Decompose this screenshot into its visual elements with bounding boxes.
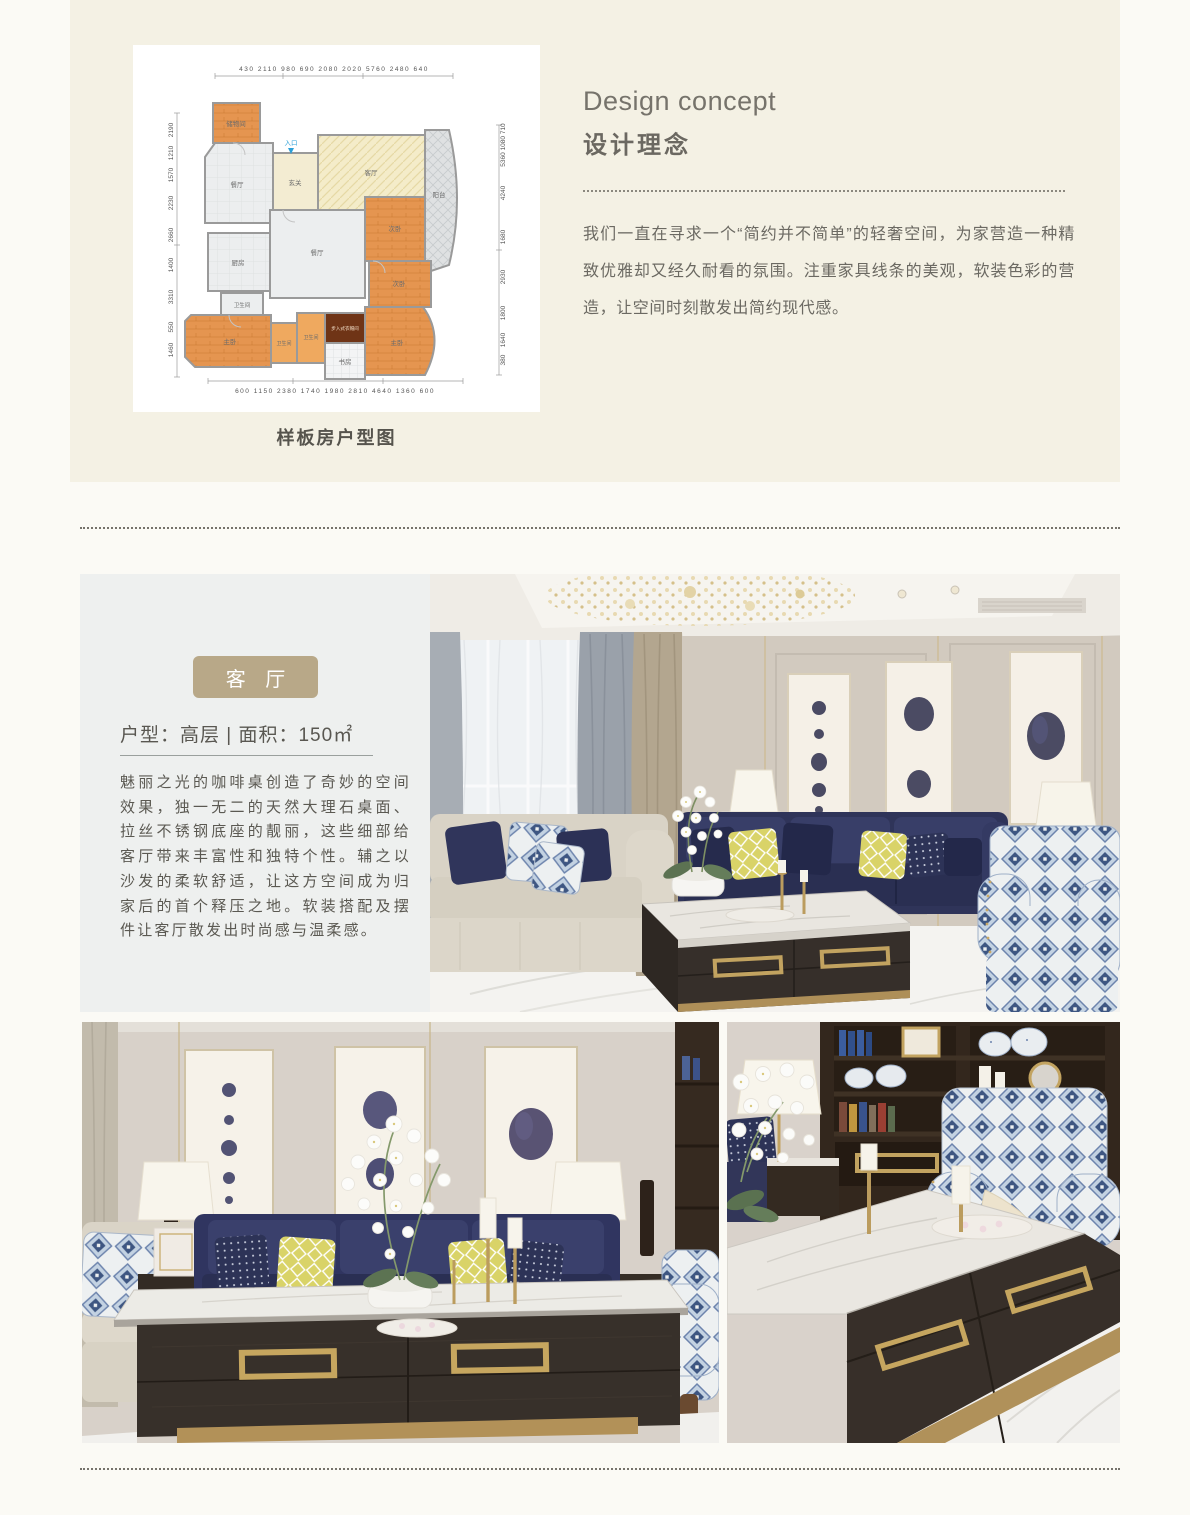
floorplan-rooms <box>185 103 457 379</box>
downlight <box>898 590 906 598</box>
room-label: 卫生间 <box>303 334 318 341</box>
dim-left: 550 <box>168 321 175 332</box>
dim-right: 2930 <box>500 269 507 284</box>
artwork-1 <box>788 674 850 834</box>
room-label: 卫生间 <box>234 301 251 309</box>
room-label: 厨房 <box>232 258 245 267</box>
section-divider-top <box>80 527 1120 529</box>
navy-pillow <box>944 838 982 876</box>
dims-top: 430 2110 980 690 2080 2020 5760 2480 640 <box>239 66 429 73</box>
page: 430 2110 980 690 2080 2020 5760 2480 640… <box>0 0 1190 1515</box>
living-room-photo-detail <box>727 1022 1120 1443</box>
dim-left: 1400 <box>168 257 175 272</box>
dotted-rule <box>583 190 1065 192</box>
dim-left: 3310 <box>168 289 175 304</box>
dim-right: 5360 1080 710 <box>500 123 507 167</box>
room-label: 餐厅 <box>231 180 245 189</box>
spec-rule <box>120 755 373 756</box>
room-label: 次卧 <box>393 279 407 288</box>
dim-right: 1680 <box>500 229 507 244</box>
design-concept-block: Design concept 设计理念 我们一直在寻求一个“简约并不简单”的轻奢… <box>583 86 1075 327</box>
side-cabinet <box>767 1158 839 1216</box>
dim-right: 380 <box>500 354 507 365</box>
room-label: 客厅 <box>365 168 379 177</box>
navy-pillow <box>444 820 508 885</box>
beige-sofa <box>430 814 674 972</box>
floorplan-card: 430 2110 980 690 2080 2020 5760 2480 640… <box>133 45 540 412</box>
dim-right: 1640 <box>500 332 507 347</box>
floorplan-image: 430 2110 980 690 2080 2020 5760 2480 640… <box>133 45 540 412</box>
patterned-armchair <box>978 826 1120 1012</box>
room-badge: 客 厅 <box>193 656 318 698</box>
artwork-2 <box>886 662 952 830</box>
dims-bottom: 600 1150 2380 1740 1980 2810 4640 1360 6… <box>235 388 435 395</box>
floor <box>680 1412 719 1443</box>
floorplan-caption: 样板房户型图 <box>133 424 540 450</box>
room-label: 储物间 <box>226 119 246 128</box>
picture-frame <box>903 1028 939 1056</box>
room-label: 主卧 <box>224 337 238 346</box>
navy-pillow <box>780 822 833 875</box>
room-label: 玄关 <box>289 178 303 187</box>
photo-row <box>82 1022 1120 1443</box>
room-label: 步入式衣帽间 <box>331 325 359 332</box>
downlight <box>951 586 959 594</box>
dotted-pillow <box>214 1234 270 1290</box>
design-concept-title-en: Design concept <box>583 86 1075 117</box>
yellow-pillow <box>858 830 908 880</box>
living-room-body: 魅丽之光的咖啡桌创造了奇妙的空间效果，独一无二的天然大理石桌面、拉丝不锈钢底座的… <box>120 771 411 944</box>
dim-right: 1800 <box>500 305 507 320</box>
dim-left: 2660 <box>168 227 175 242</box>
room-label: 书房 <box>339 357 352 366</box>
spec-line: 户型：高层 | 面积：150㎡ <box>120 720 353 747</box>
entrance-label: 入口 <box>285 139 298 147</box>
dim-left: 1210 <box>168 145 175 160</box>
dim-left: 1570 <box>168 167 175 182</box>
dim-left: 1460 <box>168 342 175 357</box>
living-room-photo-main <box>430 574 1120 1012</box>
room-label: 卫生间 <box>276 340 291 347</box>
living-room-photo-front <box>82 1022 719 1443</box>
living-room-info-panel: 客 厅 户型：高层 | 面积：150㎡ 魅丽之光的咖啡桌创造了奇妙的空间效果，独… <box>80 574 430 1012</box>
living-room-section: 客 厅 户型：高层 | 面积：150㎡ 魅丽之光的咖啡桌创造了奇妙的空间效果，独… <box>80 574 1120 1012</box>
dim-right: 4240 <box>500 185 507 200</box>
yellow-pillow <box>728 828 781 881</box>
design-concept-body: 我们一直在寻求一个“简约并不简单”的轻奢空间，为家营造一种精致优雅却又经久耐看的… <box>583 216 1075 327</box>
bookshelf <box>675 1022 719 1260</box>
room-label: 次卧 <box>389 224 403 233</box>
section-divider-bottom <box>80 1468 1120 1470</box>
petal-dish <box>726 908 794 922</box>
design-concept-title-zh: 设计理念 <box>583 125 1075 160</box>
dim-left: 2190 <box>168 122 175 137</box>
room-label: 餐厅 <box>311 248 325 257</box>
dim-left: 2230 <box>168 195 175 210</box>
room-label: 阳台 <box>433 190 446 199</box>
ikat-pillow <box>531 841 585 895</box>
top-panel: 430 2110 980 690 2080 2020 5760 2480 640… <box>70 0 1120 482</box>
room-label: 主卧 <box>391 338 405 347</box>
